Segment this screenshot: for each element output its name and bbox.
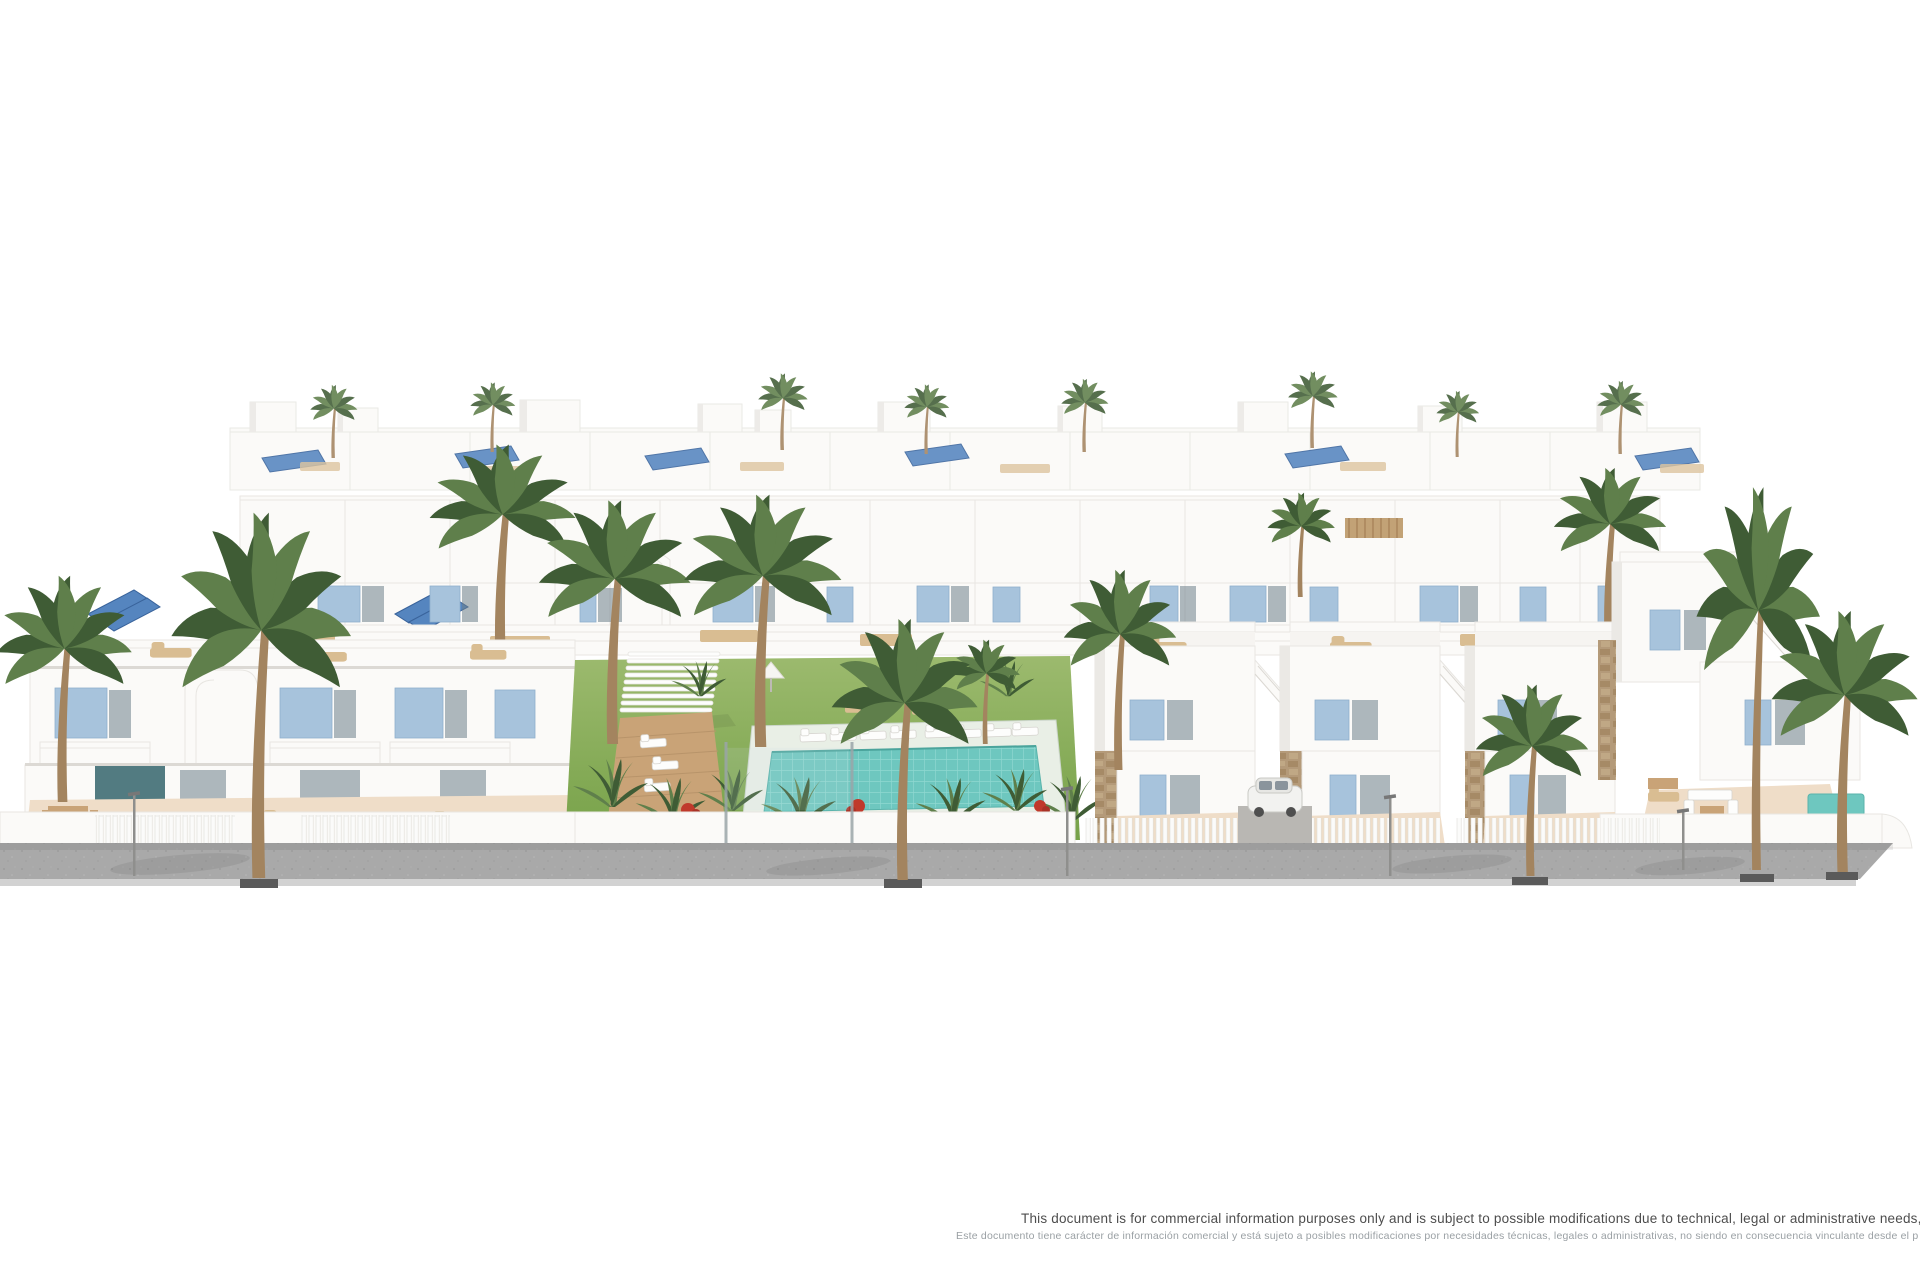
picket-fence (300, 815, 450, 845)
disclaimer-spanish: Este documento tiene carácter de informa… (956, 1230, 1918, 1242)
balcony-parapets (40, 742, 510, 765)
tree-pit (240, 879, 278, 888)
tree-pit (884, 879, 922, 888)
teal-feature-wall (95, 766, 165, 802)
tree-pit (1512, 877, 1548, 885)
tree-pit (1826, 872, 1858, 880)
picket-fence (1085, 818, 1238, 846)
boundary-wall-center (575, 812, 1075, 846)
architectural-render-page: This document is for commercial informat… (0, 0, 1920, 1280)
picket-fence (95, 815, 235, 845)
background-buildings (230, 371, 1704, 490)
tree-pit (1740, 874, 1774, 882)
balcony-bays (55, 688, 535, 738)
disclaimer: This document is for commercial informat… (0, 1206, 1920, 1260)
roof-bulkheads (250, 400, 1647, 432)
picket-fence (1312, 818, 1440, 846)
upper-pergola (1345, 518, 1403, 538)
development-render (0, 0, 1920, 1280)
disclaimer-english: This document is for commercial informat… (1021, 1211, 1920, 1226)
curb (0, 879, 1856, 886)
private-pool (1808, 794, 1864, 816)
boundary-wall-left (0, 812, 575, 846)
curved-stair-volume (185, 670, 258, 765)
stone-clad-wall (1598, 640, 1616, 780)
sidewalk (0, 843, 1893, 888)
